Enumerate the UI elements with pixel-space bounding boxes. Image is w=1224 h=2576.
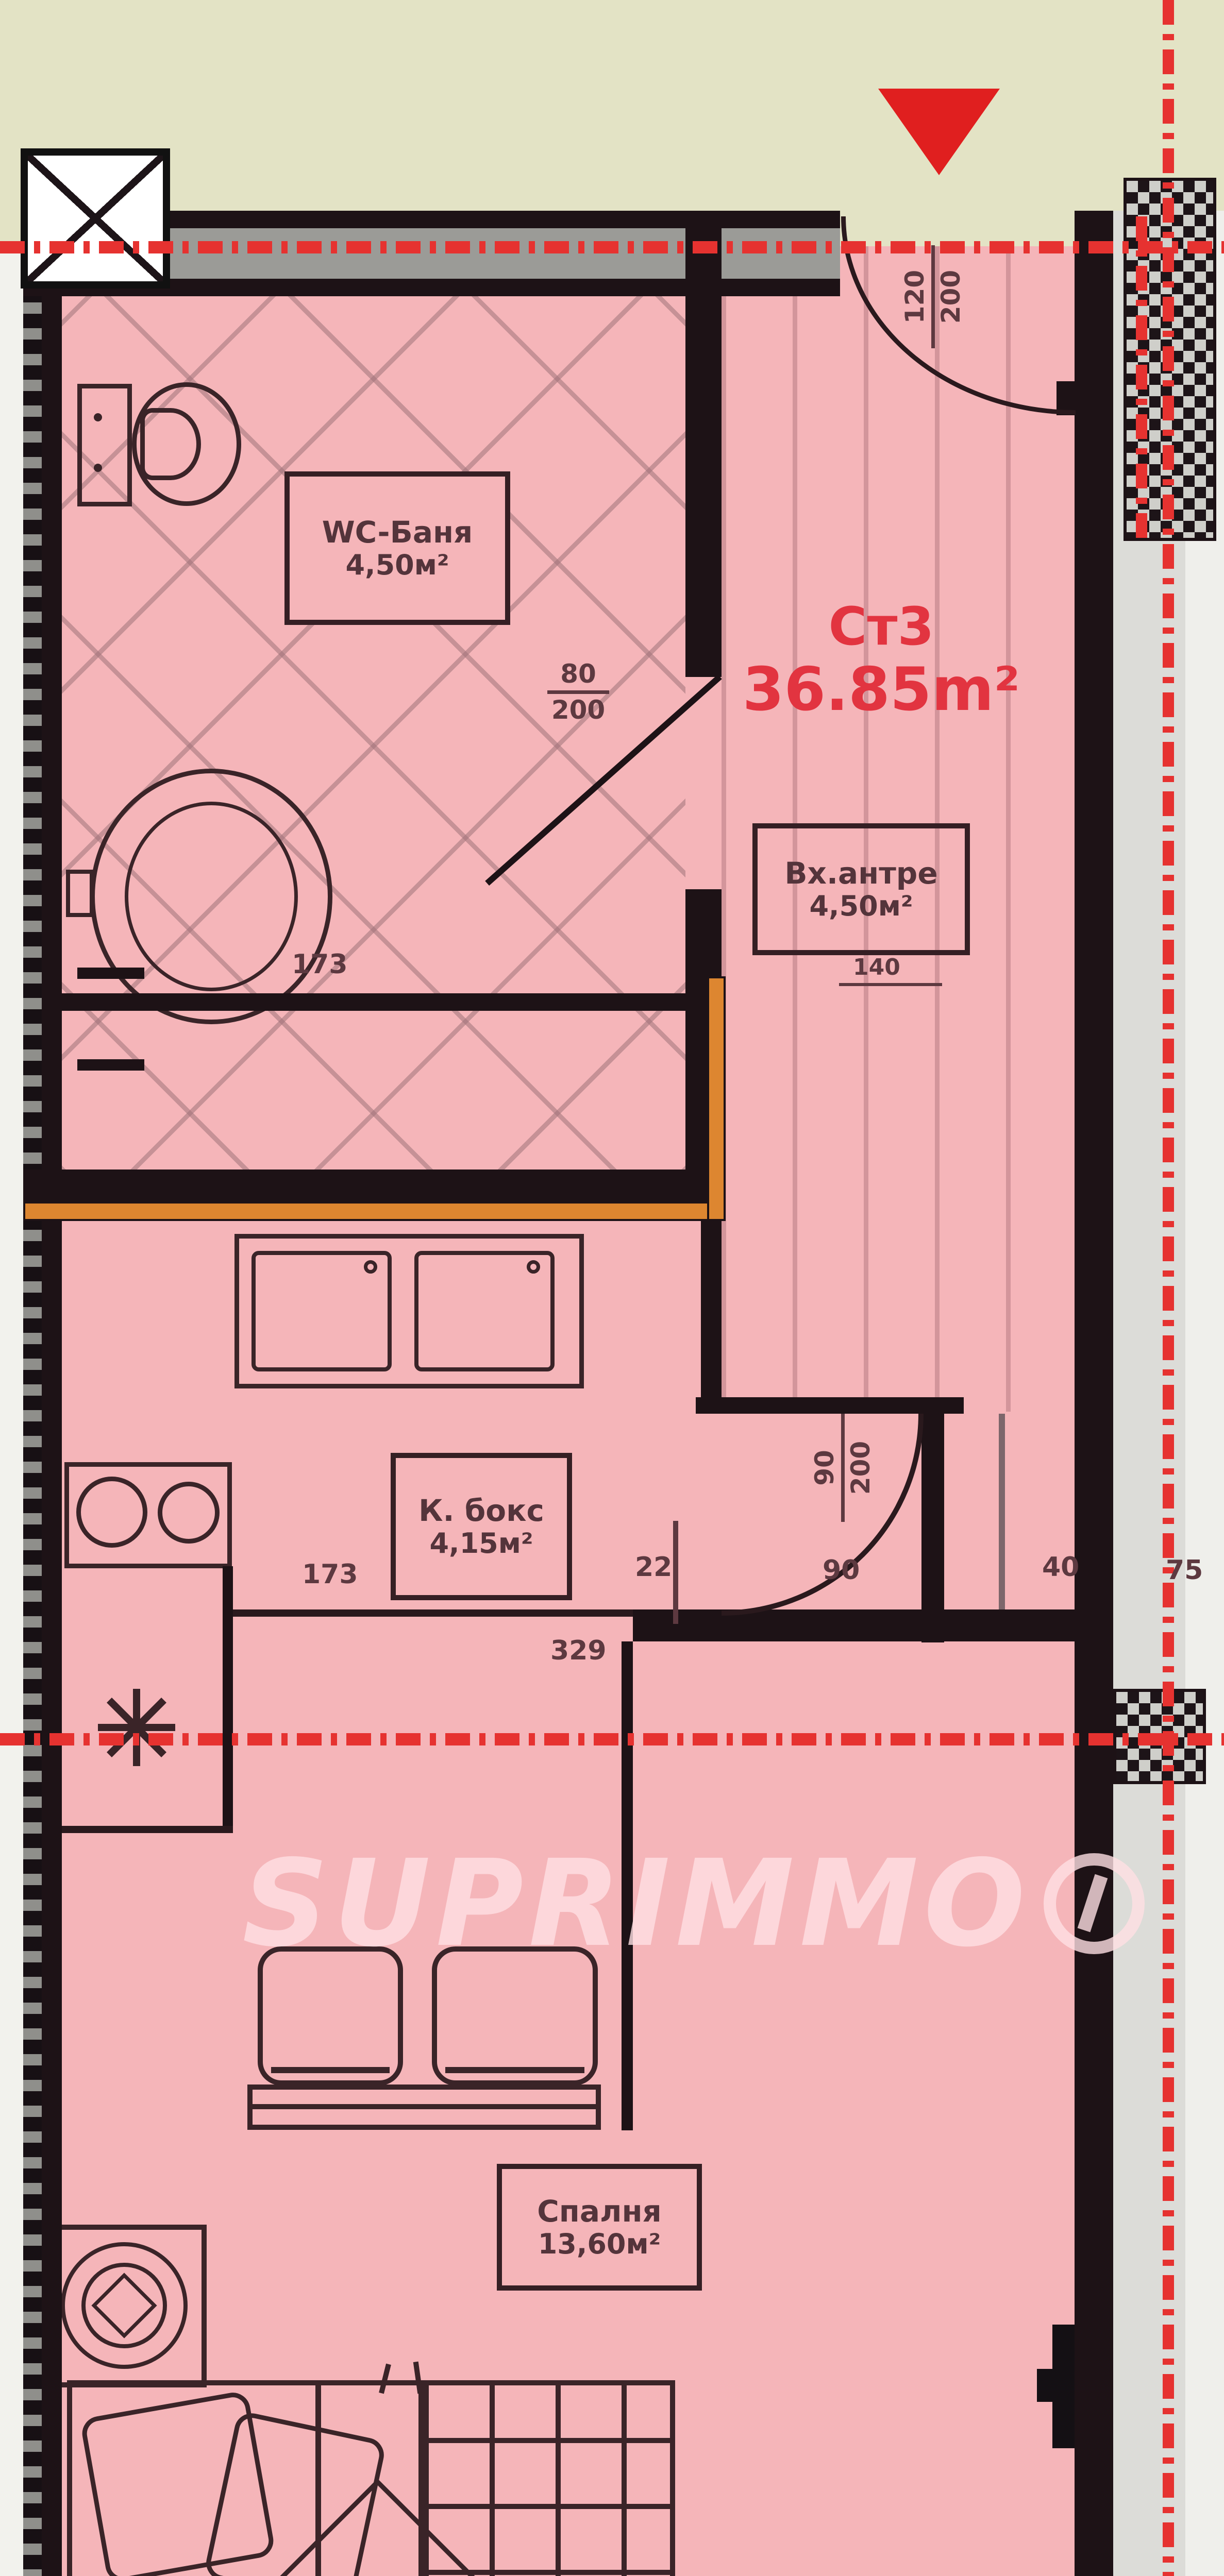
room-name: WC-Баня [322, 515, 473, 550]
entrance-marker-icon [878, 89, 1000, 175]
sink-tap-icon [66, 870, 94, 917]
exterior-wall-left-core [42, 211, 62, 2576]
dim-line [841, 1414, 845, 1522]
dim-value: 173 [292, 949, 348, 980]
room-label-bedroom: Спалня 13,60м² [497, 2164, 702, 2291]
section-line-vertical [1163, 0, 1174, 2576]
wood-partition-horizontal [23, 1201, 726, 1221]
dim-value: 200 [551, 697, 605, 724]
dim-entry-door: 120 200 [901, 245, 964, 348]
dim-line [547, 690, 609, 694]
wall-bath-kitchen [23, 1170, 726, 1201]
room-label-kitchen: К. бокс 4,15м² [391, 1453, 572, 1600]
door-frame-mark [77, 968, 144, 979]
dim-seg90: 90 [823, 1555, 860, 1586]
dim-kitchen-width: 173 [302, 1559, 358, 1590]
drain-icon [527, 1260, 540, 1274]
section-line [0, 1733, 1224, 1745]
dim-value: 90 [823, 1555, 860, 1586]
dining-table-icon [247, 2084, 601, 2130]
watermark: SUPRIMMO [242, 1834, 1145, 1973]
appliance-star-icon [98, 1689, 175, 1766]
wood-partition-vertical [707, 976, 726, 1221]
exterior-wall-left [23, 211, 42, 2576]
wall-living-top [633, 1609, 1113, 1641]
dim-kitchen-span: 329 [550, 1635, 607, 1666]
niche-line [999, 1414, 1005, 1613]
door-frame-mark [77, 1059, 144, 1071]
dim-seg75: 75 [1166, 1555, 1203, 1586]
kitchen-edge-line [233, 1609, 633, 1617]
room-area: 4,15м² [429, 1528, 533, 1560]
dim-value: 120 [901, 270, 929, 324]
watermark-logo-ring-icon [1044, 1853, 1145, 1954]
dim-value: 90 [811, 1450, 839, 1486]
section-line [0, 241, 1224, 253]
drain-icon [364, 1260, 377, 1274]
floor-plan: SUPRIMMO [0, 0, 1224, 2576]
blanket-grid [418, 2385, 675, 2576]
right-wall-cavity [1113, 211, 1185, 2576]
dim-value: 80 [560, 660, 596, 688]
dim-value: 40 [1042, 1552, 1079, 1583]
room-name: К. бокс [418, 1494, 544, 1528]
dim-seg22: 22 [635, 1552, 672, 1583]
room-label-entry: Вх.антре 4,50м² [752, 823, 970, 955]
dim-bath-width: 173 [292, 949, 348, 980]
dim-line [839, 983, 942, 986]
room-name: Спалня [537, 2194, 662, 2229]
wall-kitchen-hall [701, 1221, 722, 1397]
dim-value: 200 [937, 270, 965, 324]
toilet-cistern-icon [77, 384, 132, 506]
dim-value: 75 [1166, 1555, 1203, 1586]
column-marker [21, 148, 170, 289]
wall-hall-top [696, 1397, 964, 1414]
dim-value: 173 [302, 1559, 358, 1590]
wall-bath-entry [685, 211, 722, 677]
dim-entry-width: 140 [853, 954, 900, 980]
dim-value: 200 [847, 1441, 875, 1495]
unit-area: 36.85m² [722, 656, 1041, 723]
room-area: 4,50м² [809, 890, 913, 922]
tv-bracket-icon [1037, 2369, 1053, 2402]
toilet-button-icon [94, 464, 102, 472]
dim-seg40: 40 [1042, 1552, 1079, 1583]
watermark-text: SUPRIMMO [242, 1834, 1030, 1973]
dim-hall-door: 90 200 [811, 1414, 874, 1522]
tv-icon [1052, 2325, 1076, 2448]
dim-value: 140 [853, 954, 900, 980]
room-label-wc: WC-Баня 4,50м² [284, 471, 510, 625]
dim-value: 22 [635, 1552, 672, 1583]
wall-axis-line [1136, 216, 1147, 546]
toilet-seat-icon [140, 408, 201, 480]
dim-value: 329 [550, 1635, 607, 1666]
burner-icon [76, 1477, 147, 1548]
watermark-lightning-icon [1078, 1874, 1108, 1933]
wall-hall-right [921, 1414, 944, 1642]
right-margin [1185, 211, 1224, 2576]
dim-line [931, 245, 935, 348]
kitchen-counter-edge [62, 1826, 233, 1833]
unit-code: Ст3 [722, 598, 1041, 656]
dim-tick [673, 1521, 678, 1624]
room-name: Вх.антре [784, 856, 937, 891]
background-top [0, 0, 1224, 246]
dim-wc-door: 80 200 [547, 660, 609, 723]
room-area: 4,50м² [345, 549, 449, 581]
exterior-wall-right [1075, 211, 1113, 2576]
unit-label: Ст3 36.85m² [722, 598, 1041, 723]
sink-basin-icon [125, 802, 298, 991]
duvet-edge [315, 2385, 321, 2576]
kitchen-counter-edge [223, 1566, 233, 1833]
bath-partition-wall [62, 993, 685, 1011]
toilet-button-icon [94, 413, 102, 421]
room-area: 13,60м² [538, 2228, 661, 2260]
burner-icon [158, 1482, 220, 1544]
